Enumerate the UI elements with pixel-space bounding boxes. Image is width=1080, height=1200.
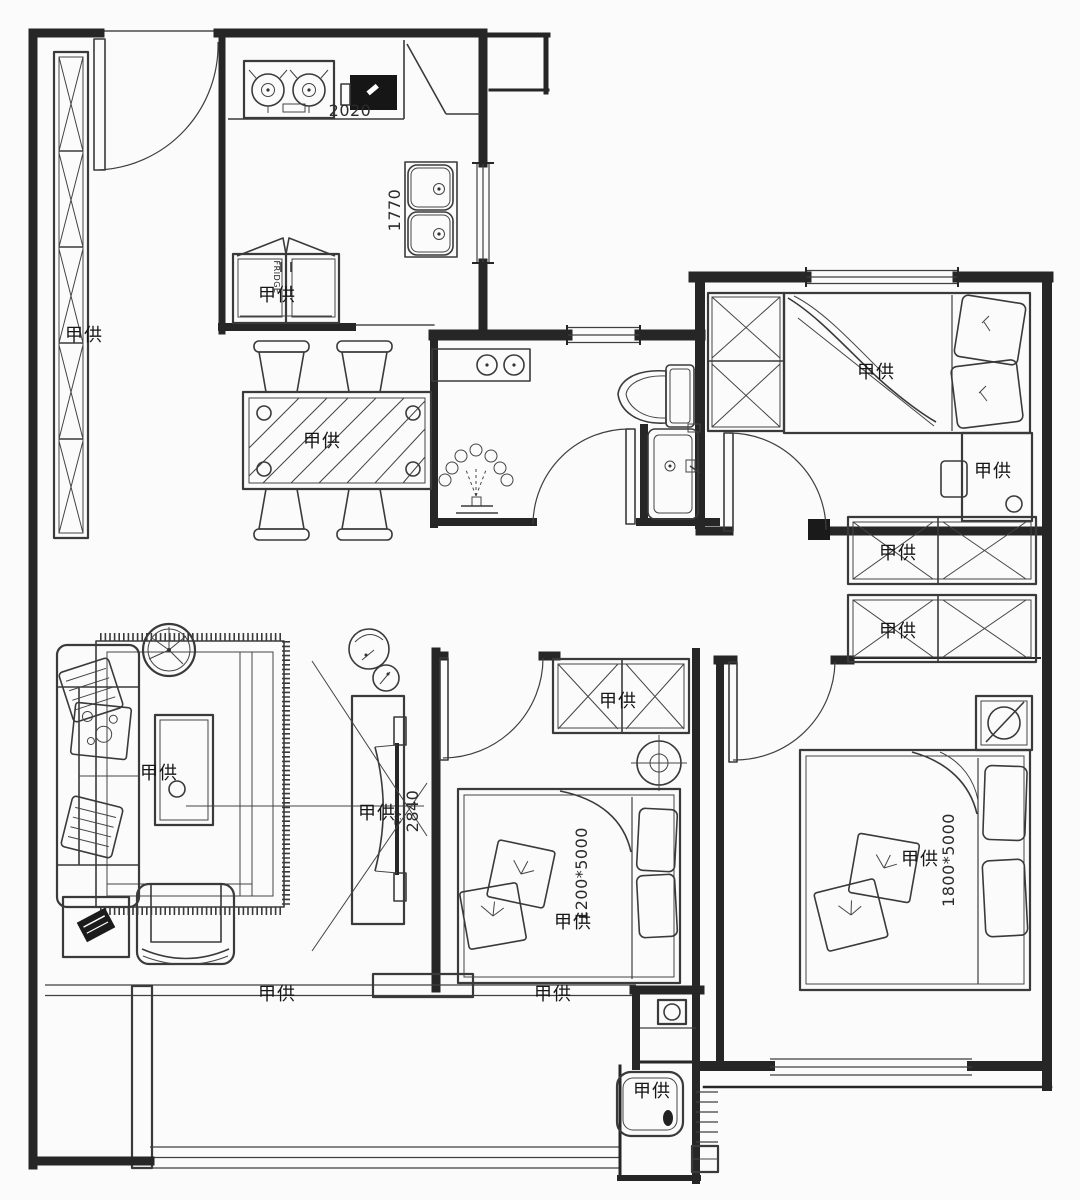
clock-icon xyxy=(143,624,195,676)
nightstand-icon xyxy=(976,696,1032,750)
label-dim-1770: 1770 xyxy=(385,189,404,232)
shoe-cabinet xyxy=(54,52,88,538)
vanity-icon xyxy=(432,349,530,381)
washbasin-icon xyxy=(648,429,700,519)
label-fridge-tag: FRIDGE xyxy=(272,261,281,294)
plant-icon xyxy=(349,629,399,691)
double-sink-icon xyxy=(405,162,457,257)
label-coffee-table: 甲供 xyxy=(140,763,178,784)
closet-rows xyxy=(848,517,1036,662)
label-closet-row1: 甲供 xyxy=(879,543,917,564)
label-dim-2020: 2020 xyxy=(329,101,372,120)
label-dining-table: 甲供 xyxy=(303,431,341,452)
label-bed-top-right: 甲供 xyxy=(857,362,895,383)
toilet-icon xyxy=(618,365,700,432)
living-room xyxy=(57,624,427,965)
label-closet-row2: 甲供 xyxy=(879,621,917,642)
label-master-dim: 1800*5000 xyxy=(939,813,958,907)
bathroom xyxy=(432,349,700,519)
ceiling-fan-icon xyxy=(631,735,687,791)
wardrobe-top-right xyxy=(708,293,784,431)
bedroom-top-right xyxy=(708,293,1032,521)
column xyxy=(808,519,830,540)
stove-icon xyxy=(244,61,334,118)
master-bed xyxy=(800,750,1030,990)
balcony-pillar xyxy=(132,986,152,1168)
master-bedroom xyxy=(800,696,1032,990)
label-tv: 甲供 xyxy=(358,803,396,824)
doors xyxy=(94,39,835,762)
bedroom2-door xyxy=(440,658,543,760)
walls xyxy=(33,31,1051,1180)
washing-machine-icon xyxy=(658,1000,686,1024)
label-desk: 甲供 xyxy=(974,461,1012,482)
utility-room xyxy=(617,1000,686,1136)
kitchen xyxy=(228,40,480,323)
label-b2-bed: 甲供 xyxy=(554,912,592,933)
label-balcony-left: 甲供 xyxy=(258,984,296,1005)
bed-top-right xyxy=(784,293,1030,433)
shower-icon xyxy=(439,444,513,513)
label-b2-wardrobe: 甲供 xyxy=(599,691,637,712)
rug xyxy=(96,637,286,911)
label-master-bed: 甲供 xyxy=(901,849,939,870)
floor-plan-drawing: 甲供 甲供 FRIDGE 2020 1770 甲供 甲供 甲供 甲供 甲供 甲供… xyxy=(0,0,1080,1200)
bathroom-door xyxy=(533,429,635,524)
sofa xyxy=(57,645,139,907)
label-balcony-right: 甲供 xyxy=(534,984,572,1005)
bedroom2 xyxy=(458,659,689,983)
label-dim-2840: 2840 xyxy=(403,790,422,833)
bedroom2-bed xyxy=(458,789,680,983)
fridge-icon xyxy=(233,238,339,323)
label-tub: 甲供 xyxy=(633,1081,671,1102)
entry-door xyxy=(94,39,218,170)
labels: 甲供 甲供 FRIDGE 2020 1770 甲供 甲供 甲供 甲供 甲供 甲供… xyxy=(65,101,1012,1102)
bedroom-top-door xyxy=(724,433,826,531)
floor-plan: 甲供 甲供 FRIDGE 2020 1770 甲供 甲供 甲供 甲供 甲供 甲供… xyxy=(0,0,1080,1200)
label-b2-dim: 1200*5000 xyxy=(572,827,591,921)
master-door xyxy=(729,662,835,762)
label-shoe-cabinet: 甲供 xyxy=(65,325,103,346)
